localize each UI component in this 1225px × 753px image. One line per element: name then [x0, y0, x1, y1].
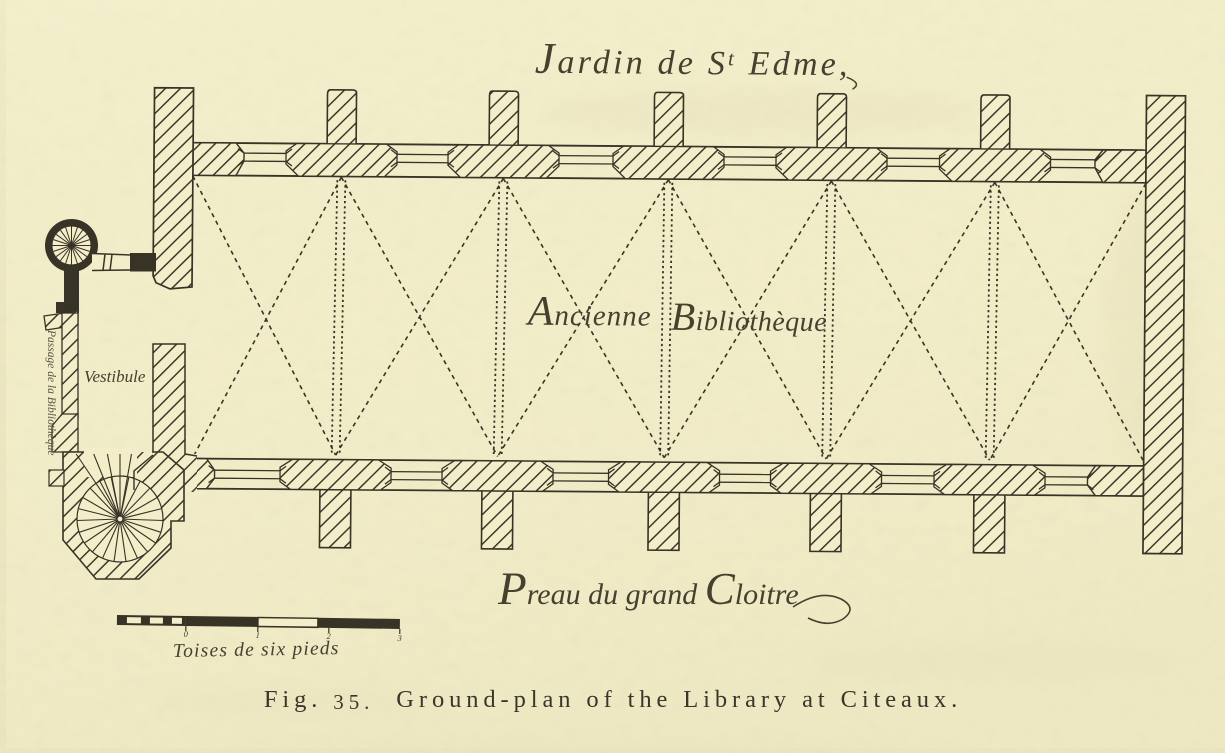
svg-text:Passage de la Bibliothèque: Passage de la Bibliothèque [45, 329, 57, 456]
svg-text:3: 3 [397, 633, 402, 643]
svg-text:1: 1 [256, 630, 260, 640]
svg-text:Fig. 35. Ground-plan of the L: Fig. 35. Ground-plan of the Library at C… [264, 686, 962, 714]
svg-text:Vestibule: Vestibule [84, 367, 146, 386]
svg-text:Toises de six pieds: Toises de six pieds [173, 638, 340, 662]
